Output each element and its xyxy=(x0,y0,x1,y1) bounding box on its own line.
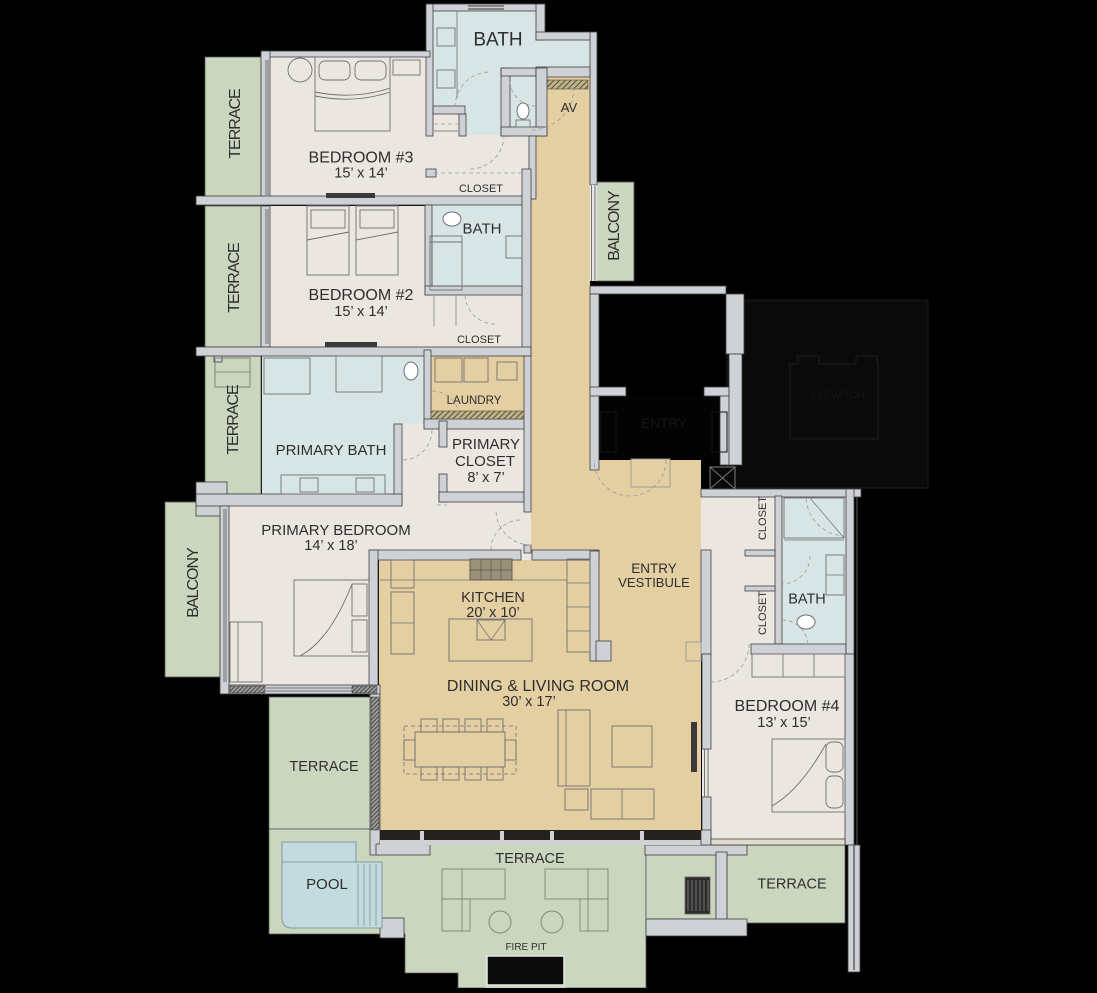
svg-text:PRIMARY BEDROOM: PRIMARY BEDROOM xyxy=(261,522,410,539)
svg-text:POOL: POOL xyxy=(306,876,348,893)
svg-text:15’ x 14’: 15’ x 14’ xyxy=(334,166,387,182)
svg-text:CLOSET: CLOSET xyxy=(459,183,503,195)
svg-text:LAUNDRY: LAUNDRY xyxy=(447,395,502,407)
svg-text:13’ x 15’: 13’ x 15’ xyxy=(757,715,810,731)
svg-text:FIRE PIT: FIRE PIT xyxy=(505,942,546,953)
svg-text:TERRACE: TERRACE xyxy=(227,89,244,159)
svg-text:AV: AV xyxy=(561,100,578,115)
svg-text:20’ x 10’: 20’ x 10’ xyxy=(466,605,519,621)
svg-text:KITCHEN: KITCHEN xyxy=(461,590,525,606)
svg-text:30’ x 17’: 30’ x 17’ xyxy=(502,694,555,710)
svg-text:PRIMARY: PRIMARY xyxy=(452,436,520,453)
svg-text:ENTRY: ENTRY xyxy=(631,561,677,576)
svg-text:CLOSET: CLOSET xyxy=(457,334,501,346)
svg-text:CLOSET: CLOSET xyxy=(757,591,769,635)
svg-text:BATH: BATH xyxy=(788,592,826,608)
svg-text:TERRACE: TERRACE xyxy=(226,243,243,313)
svg-text:ENTRY: ENTRY xyxy=(641,416,687,431)
svg-text:BEDROOM #4: BEDROOM #4 xyxy=(735,698,840,715)
svg-text:CLOSET: CLOSET xyxy=(757,496,769,540)
svg-text:TERRACE: TERRACE xyxy=(289,759,359,775)
svg-text:CLOSET: CLOSET xyxy=(455,453,515,470)
svg-text:BATH: BATH xyxy=(463,221,502,238)
svg-text:15’ x 14’: 15’ x 14’ xyxy=(334,304,387,320)
svg-text:TERRACE: TERRACE xyxy=(225,385,242,455)
svg-text:BEDROOM #3: BEDROOM #3 xyxy=(309,150,414,167)
svg-text:BATH: BATH xyxy=(473,30,522,51)
svg-text:VESTIBULE: VESTIBULE xyxy=(618,575,690,590)
svg-text:14’ x 18’: 14’ x 18’ xyxy=(304,538,357,554)
svg-text:TERRACE: TERRACE xyxy=(757,877,827,893)
svg-text:ELEVATOR: ELEVATOR xyxy=(811,390,866,402)
svg-text:TERRACE: TERRACE xyxy=(495,851,565,867)
svg-text:DINING & LIVING ROOM: DINING & LIVING ROOM xyxy=(447,678,629,695)
svg-text:8’ x 7’: 8’ x 7’ xyxy=(467,470,504,486)
svg-text:BEDROOM #2: BEDROOM #2 xyxy=(309,287,414,304)
svg-text:BALCONY: BALCONY xyxy=(185,547,202,618)
svg-text:PRIMARY BATH: PRIMARY BATH xyxy=(276,442,387,459)
svg-text:BALCONY: BALCONY xyxy=(606,190,623,261)
